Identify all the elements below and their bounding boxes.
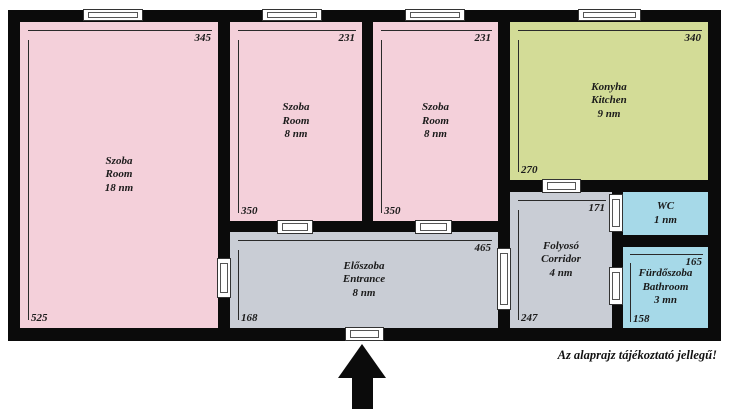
room-label: Szoba Room 8 nm	[422, 101, 449, 141]
dimension-line-left	[238, 40, 239, 213]
dimension-line-top	[238, 30, 356, 31]
room-name-en: Bathroom	[639, 281, 693, 294]
room-area: 3 mn	[639, 294, 693, 307]
room-name-hu: Szoba	[105, 155, 133, 168]
room-label: Folyosó Corridor 4 nm	[541, 240, 581, 280]
room-kitchen: 340 270 Konyha Kitchen 9 nm	[510, 22, 708, 180]
door-room-mid-left-entrance	[277, 220, 313, 234]
room-wc: WC 1 nm	[623, 192, 708, 235]
room-area: 1 nm	[654, 214, 677, 227]
dimension-line-top	[518, 200, 606, 201]
room-mid-left: 231 350 Szoba Room 8 nm	[230, 22, 362, 221]
room-name-hu: Konyha	[591, 81, 626, 94]
dimension-height-label: 525	[31, 312, 48, 324]
dimension-width-label: 165	[686, 256, 703, 268]
window-kitchen	[578, 9, 641, 21]
dimension-width-label: 231	[339, 32, 356, 44]
dimension-line-left	[238, 250, 239, 320]
dimension-width-label: 465	[475, 242, 492, 254]
room-corridor: 171 247 Folyosó Corridor 4 nm	[510, 192, 612, 328]
room-label: Előszoba Entrance 8 nm	[343, 260, 385, 300]
room-mid-right: 231 350 Szoba Room 8 nm	[373, 22, 498, 221]
room-label: Szoba Room 8 nm	[283, 101, 310, 141]
door-room-mid-right-entrance	[415, 220, 452, 234]
dimension-line-left	[518, 40, 519, 172]
door-entrance-corridor	[497, 248, 511, 310]
dimension-height-label: 270	[521, 164, 538, 176]
dimension-height-label: 158	[633, 313, 650, 325]
room-name-en: Room	[422, 115, 449, 128]
room-area: 8 nm	[343, 287, 385, 300]
room-name-en: Room	[105, 168, 133, 181]
dimension-line-top	[238, 240, 492, 241]
dimension-height-label: 350	[241, 205, 258, 217]
dimension-width-label: 231	[475, 32, 492, 44]
room-area: 8 nm	[422, 128, 449, 141]
door-corridor-wc	[609, 194, 623, 232]
dimension-line-top	[381, 30, 492, 31]
dimension-height-label: 350	[384, 205, 401, 217]
room-name-en: Kitchen	[591, 94, 626, 107]
room-name-hu: Szoba	[283, 101, 310, 114]
dimension-height-label: 247	[521, 312, 538, 324]
room-label: Fürdőszoba Bathroom 3 mn	[639, 267, 693, 307]
room-name-hu: Előszoba	[343, 260, 385, 273]
dimension-width-label: 340	[685, 32, 702, 44]
dimension-line-left	[518, 210, 519, 320]
room-label: WC 1 nm	[654, 200, 677, 227]
dimension-width-label: 345	[195, 32, 212, 44]
dimension-line-left	[630, 263, 631, 322]
window-room-mid-left	[262, 9, 322, 21]
room-label: Szoba Room 18 nm	[105, 155, 133, 195]
door-kitchen-corridor	[542, 179, 581, 193]
dimension-line-left	[28, 40, 29, 320]
room-name-hu: Szoba	[422, 101, 449, 114]
door-main-entrance	[345, 327, 384, 341]
dimension-line-top	[28, 30, 212, 31]
door-room-large-entrance	[217, 258, 231, 298]
room-bathroom: 165 158 Fürdőszoba Bathroom 3 mn	[623, 247, 708, 328]
disclaimer-text: Az alaprajz tájékoztató jellegű!	[558, 348, 717, 363]
room-name-en: Corridor	[541, 253, 581, 266]
room-name: WC	[654, 200, 677, 213]
room-area: 4 nm	[541, 267, 581, 280]
entrance-arrow-icon	[338, 344, 386, 378]
room-area: 18 nm	[105, 182, 133, 195]
door-corridor-bathroom	[609, 267, 623, 305]
dimension-height-label: 168	[241, 312, 258, 324]
room-name-en: Entrance	[343, 273, 385, 286]
window-room-large	[83, 9, 143, 21]
dimension-line-top	[630, 254, 703, 255]
room-entrance: 465 168 Előszoba Entrance 8 nm	[230, 232, 498, 328]
room-name-hu: Fürdőszoba	[639, 267, 693, 280]
dimension-width-label: 171	[589, 202, 606, 214]
window-room-mid-right	[405, 9, 465, 21]
room-large: 345 525 Szoba Room 18 nm	[20, 22, 218, 328]
dimension-line-top	[518, 30, 702, 31]
dimension-line-left	[381, 40, 382, 213]
room-name-hu: Folyosó	[541, 240, 581, 253]
room-name-en: Room	[283, 115, 310, 128]
room-label: Konyha Kitchen 9 nm	[591, 81, 626, 121]
floor-plan: 345 525 Szoba Room 18 nm 231 350 Szoba R…	[0, 0, 730, 413]
room-area: 8 nm	[283, 128, 310, 141]
room-area: 9 nm	[591, 108, 626, 121]
entrance-arrow-shaft	[352, 376, 373, 409]
